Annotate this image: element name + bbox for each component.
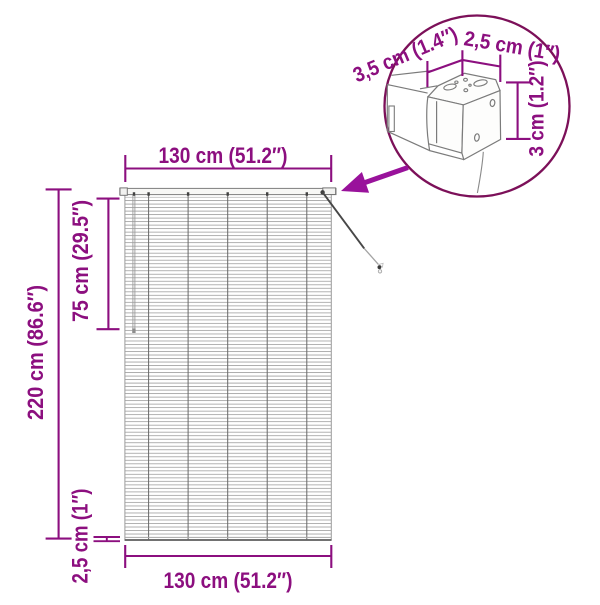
svg-text:3 cm (1.2″): 3 cm (1.2″) [526,61,549,157]
svg-text:75 cm (29.5″): 75 cm (29.5″) [68,200,93,322]
svg-text:130 cm (51.2″): 130 cm (51.2″) [164,568,293,593]
svg-text:220 cm (86.6″): 220 cm (86.6″) [23,285,48,420]
svg-text:2,5 cm (1″): 2,5 cm (1″) [68,489,93,584]
svg-text:130 cm (51.2″): 130 cm (51.2″) [159,143,288,168]
